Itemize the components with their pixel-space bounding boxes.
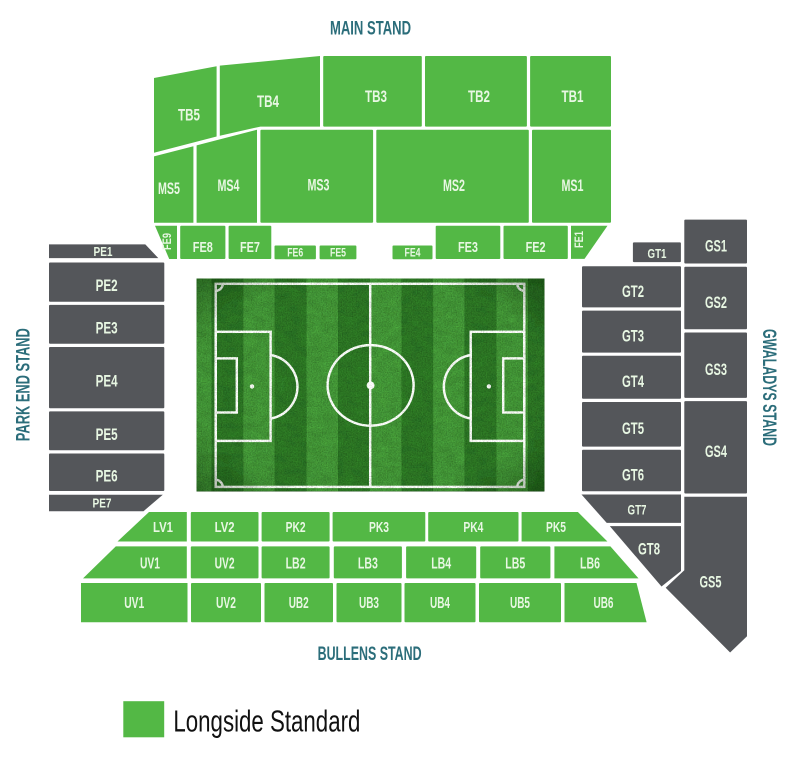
svg-text:PARK END STAND: PARK END STAND: [13, 328, 35, 441]
svg-text:GWALADYS STAND: GWALADYS STAND: [758, 329, 780, 446]
svg-text:GS5: GS5: [700, 573, 722, 591]
svg-text:LB3: LB3: [358, 556, 378, 573]
svg-text:FE2: FE2: [526, 239, 546, 256]
svg-text:TB5: TB5: [178, 106, 200, 124]
svg-text:PE7: PE7: [93, 496, 112, 511]
svg-text:UB3: UB3: [359, 595, 379, 612]
svg-text:FE4: FE4: [405, 247, 421, 259]
svg-text:Longside Standard: Longside Standard: [173, 704, 360, 739]
svg-text:UV2: UV2: [215, 556, 235, 573]
svg-text:UV1: UV1: [140, 556, 160, 573]
svg-text:UB2: UB2: [289, 595, 309, 612]
svg-text:PK4: PK4: [463, 520, 483, 536]
svg-text:MAIN STAND: MAIN STAND: [330, 17, 411, 39]
svg-text:PE4: PE4: [96, 373, 119, 391]
svg-text:LB6: LB6: [580, 556, 600, 573]
svg-text:PE2: PE2: [96, 277, 118, 295]
svg-text:PE6: PE6: [96, 467, 118, 485]
svg-text:LV2: LV2: [215, 520, 235, 536]
svg-text:MS5: MS5: [158, 180, 180, 198]
svg-text:FE7: FE7: [240, 240, 260, 256]
svg-text:UV1: UV1: [124, 595, 144, 612]
svg-text:GS4: GS4: [705, 443, 728, 461]
svg-text:FE3: FE3: [458, 239, 478, 256]
svg-text:MS3: MS3: [308, 176, 330, 194]
svg-text:LB4: LB4: [431, 556, 451, 573]
svg-text:TB4: TB4: [257, 93, 280, 111]
svg-text:UB4: UB4: [430, 595, 450, 612]
svg-text:UB6: UB6: [594, 595, 614, 612]
svg-text:GS3: GS3: [705, 361, 727, 379]
svg-text:MS2: MS2: [443, 177, 465, 195]
svg-text:FE9: FE9: [160, 233, 174, 250]
svg-text:GT8: GT8: [638, 540, 660, 558]
svg-text:FE5: FE5: [330, 247, 346, 259]
svg-text:UB5: UB5: [510, 595, 530, 612]
svg-text:PE3: PE3: [96, 319, 118, 337]
svg-text:FE1: FE1: [572, 231, 586, 248]
svg-text:GT4: GT4: [622, 373, 645, 391]
svg-text:TB1: TB1: [562, 88, 584, 106]
svg-text:LV1: LV1: [153, 520, 173, 536]
svg-text:LB5: LB5: [505, 556, 525, 573]
svg-text:TB3: TB3: [365, 88, 387, 106]
svg-text:GT6: GT6: [622, 466, 644, 484]
svg-text:LB2: LB2: [286, 556, 306, 573]
svg-text:GT7: GT7: [628, 502, 647, 517]
svg-text:GS1: GS1: [705, 237, 727, 255]
svg-text:PK5: PK5: [546, 520, 566, 536]
svg-text:FE8: FE8: [193, 240, 213, 256]
svg-text:TB2: TB2: [468, 88, 490, 106]
svg-text:GT3: GT3: [622, 328, 644, 346]
svg-text:GT5: GT5: [622, 420, 644, 438]
svg-text:FE6: FE6: [287, 247, 303, 259]
svg-text:PE1: PE1: [94, 244, 113, 259]
svg-text:GS2: GS2: [705, 294, 727, 312]
svg-text:PE5: PE5: [96, 426, 118, 444]
svg-text:GT1: GT1: [648, 246, 667, 261]
svg-text:BULLENS STAND: BULLENS STAND: [318, 643, 422, 665]
svg-text:PK3: PK3: [369, 520, 389, 536]
svg-text:GT2: GT2: [622, 283, 644, 301]
svg-text:UV2: UV2: [216, 595, 236, 612]
svg-text:MS1: MS1: [562, 177, 584, 195]
svg-text:MS4: MS4: [218, 177, 241, 195]
svg-text:PK2: PK2: [286, 520, 306, 536]
